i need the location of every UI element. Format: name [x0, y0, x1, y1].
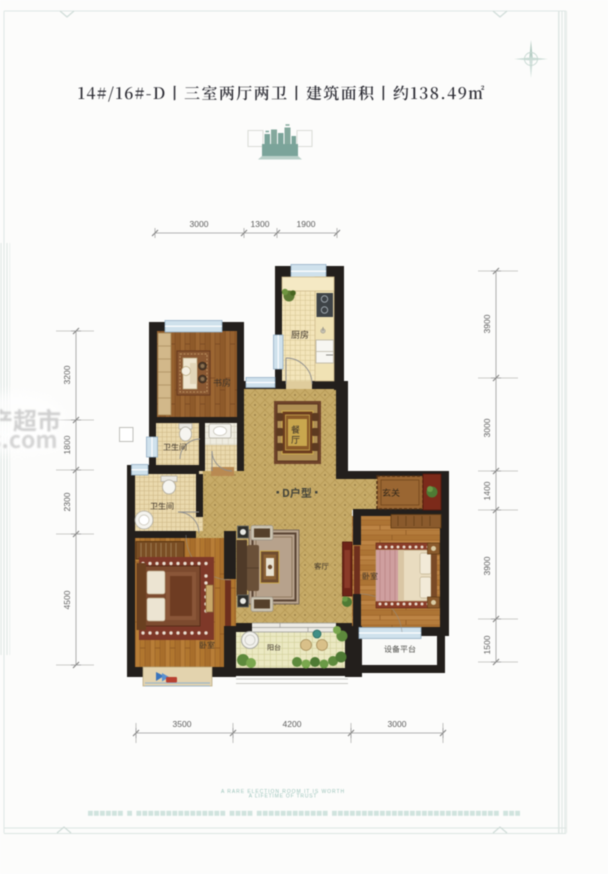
svg-text:4200: 4200 — [283, 719, 302, 729]
svg-text:1800: 1800 — [62, 435, 72, 454]
svg-text:1400: 1400 — [482, 481, 492, 500]
svg-text:1300: 1300 — [251, 219, 270, 229]
svg-text:3000: 3000 — [482, 418, 492, 437]
svg-text:3900: 3900 — [482, 314, 492, 333]
svg-text:3000: 3000 — [190, 219, 209, 229]
svg-text:3200: 3200 — [62, 365, 72, 384]
svg-text:A LIFETIME OF TRUST: A LIFETIME OF TRUST — [249, 794, 317, 800]
svg-text:3500: 3500 — [173, 719, 192, 729]
svg-text:1500: 1500 — [482, 635, 492, 654]
svg-text:3000: 3000 — [388, 719, 407, 729]
svg-text:1900: 1900 — [297, 219, 316, 229]
svg-text:3900: 3900 — [482, 556, 492, 575]
svg-text:4500: 4500 — [62, 590, 72, 609]
svg-text:2300: 2300 — [62, 492, 72, 511]
